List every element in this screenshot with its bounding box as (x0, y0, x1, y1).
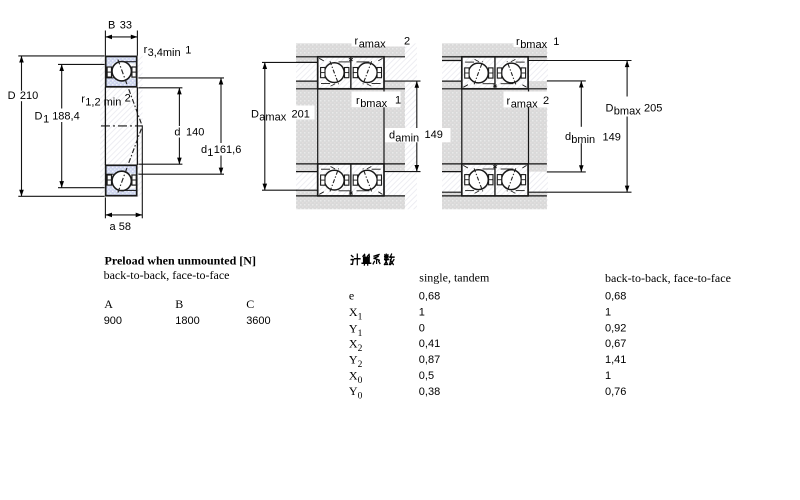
svg-text:A: A (104, 297, 113, 311)
svg-text:0,92: 0,92 (605, 323, 626, 335)
svg-text:140: 140 (186, 127, 204, 139)
svg-text:1,2 min: 1,2 min (85, 96, 121, 108)
svg-text:0,67: 0,67 (605, 338, 626, 350)
svg-text:bmax: bmax (360, 98, 387, 110)
svg-text:149: 149 (603, 131, 621, 143)
svg-text:1: 1 (395, 95, 401, 107)
svg-text:amax: amax (511, 98, 538, 110)
svg-text:2: 2 (125, 92, 131, 104)
svg-text:e: e (349, 288, 354, 302)
svg-text:0,41: 0,41 (419, 338, 440, 350)
svg-text:C: C (246, 297, 254, 311)
svg-text:0,68: 0,68 (605, 291, 626, 303)
svg-text:bmax: bmax (614, 105, 641, 117)
svg-text:3600: 3600 (246, 315, 270, 327)
svg-text:1: 1 (419, 307, 425, 319)
svg-text:amax: amax (359, 39, 386, 51)
svg-text:161,6: 161,6 (214, 144, 242, 156)
svg-text:0,76: 0,76 (605, 386, 626, 398)
svg-text:d: d (565, 131, 571, 143)
svg-text:0,5: 0,5 (419, 370, 434, 382)
svg-text:amax: amax (259, 111, 286, 123)
svg-text:B: B (108, 19, 115, 31)
svg-text:Preload when unmounted [N]: Preload when unmounted [N] (105, 253, 256, 267)
svg-text:2: 2 (404, 36, 410, 48)
svg-text:2: 2 (543, 95, 549, 107)
svg-text:D: D (8, 90, 16, 102)
svg-text:back-to-back, face-to-face: back-to-back, face-to-face (605, 271, 731, 285)
svg-text:1,41: 1,41 (605, 354, 626, 366)
svg-text:d: d (389, 130, 395, 142)
svg-text:amin: amin (395, 133, 419, 145)
svg-text:1: 1 (207, 147, 213, 159)
svg-text:0,38: 0,38 (419, 386, 440, 398)
svg-text:0,68: 0,68 (419, 291, 440, 303)
svg-text:1: 1 (185, 44, 191, 56)
svg-text:3,4min: 3,4min (148, 47, 181, 59)
svg-text:1: 1 (43, 113, 49, 125)
svg-text:149: 149 (425, 129, 443, 141)
svg-text:D: D (35, 110, 43, 122)
svg-text:210: 210 (20, 90, 38, 102)
svg-text:0: 0 (419, 323, 425, 335)
svg-text:1: 1 (605, 370, 611, 382)
svg-text:bmin: bmin (571, 134, 595, 146)
svg-text:d: d (174, 127, 180, 139)
svg-text:a: a (110, 221, 117, 233)
svg-text:205: 205 (644, 102, 662, 114)
svg-text:1800: 1800 (175, 315, 199, 327)
svg-text:33: 33 (120, 19, 132, 31)
svg-text:188,4: 188,4 (52, 110, 80, 122)
svg-text:B: B (175, 297, 183, 311)
svg-text:900: 900 (104, 315, 122, 327)
svg-text:bmax: bmax (520, 39, 547, 51)
svg-text:d: d (201, 144, 207, 156)
svg-text:single, tandem: single, tandem (419, 271, 490, 285)
svg-text:D: D (606, 102, 614, 114)
svg-text:1: 1 (553, 36, 559, 48)
svg-text:back-to-back, face-to-face: back-to-back, face-to-face (104, 268, 230, 282)
svg-text:58: 58 (119, 221, 131, 233)
svg-text:0,87: 0,87 (419, 354, 440, 366)
svg-text:201: 201 (292, 108, 310, 120)
svg-text:1: 1 (605, 307, 611, 319)
svg-text:D: D (251, 108, 259, 120)
